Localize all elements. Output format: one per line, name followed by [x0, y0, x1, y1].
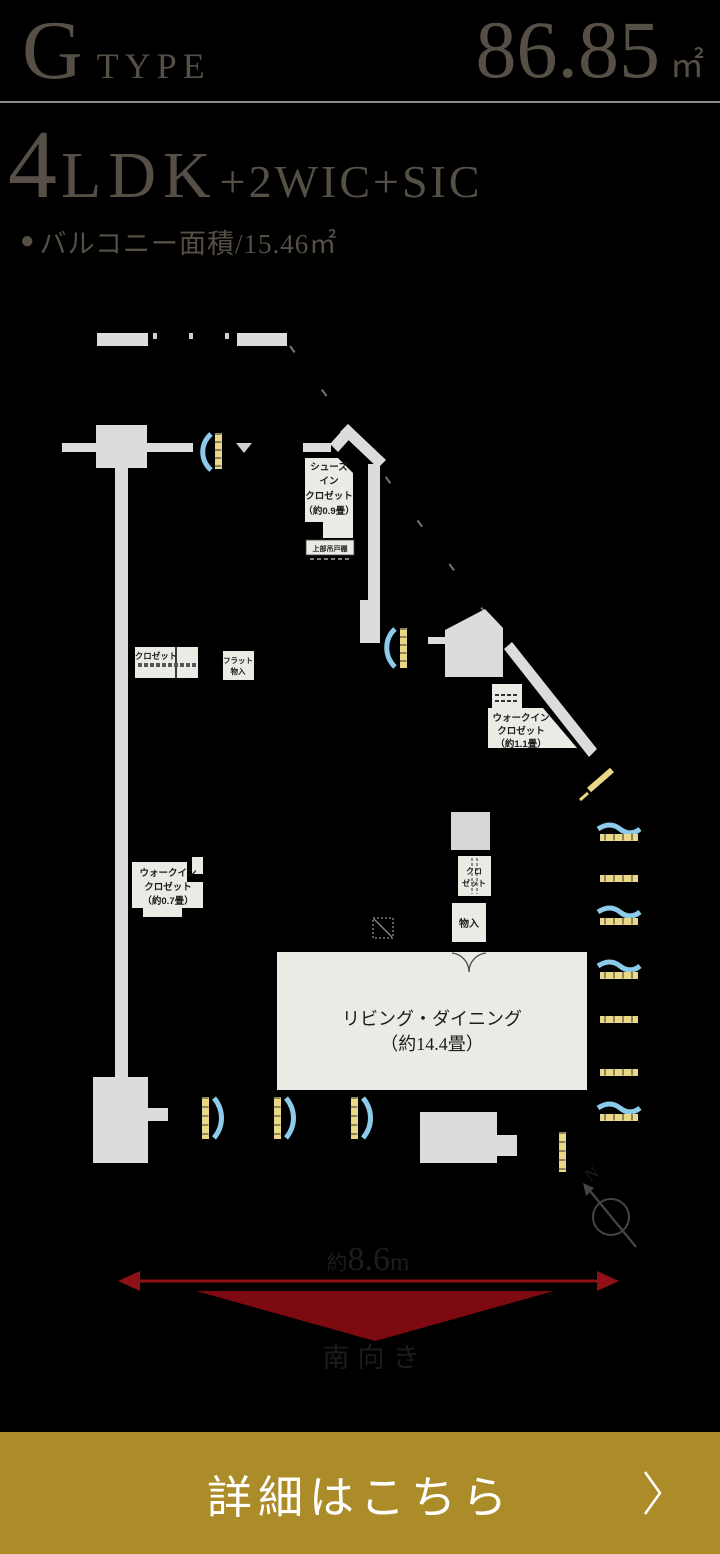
- details-button-label: 詳細はこちら: [207, 1461, 513, 1526]
- wall-tick: [189, 333, 193, 339]
- width-dimension-label: 約8.6m: [327, 1241, 411, 1278]
- door-arc-icon: [363, 1098, 371, 1138]
- dimension-arrowhead-right: [597, 1271, 619, 1291]
- flat-storage-label: フラット: [223, 656, 253, 665]
- door-leaf-icon: [274, 1097, 281, 1139]
- wic07-label: クロゼット: [144, 881, 192, 893]
- shoes-closet-label: （約0.9畳）: [303, 505, 354, 517]
- wic11-label: ウォークイン: [492, 713, 549, 724]
- wic07-label: （約0.7畳）: [142, 895, 193, 907]
- chevron-right-icon: [642, 1467, 664, 1519]
- floorplan-drawing: シューズ イン クロゼット （約0.9畳） 上部吊戸棚 クロゼット フラット 物…: [0, 0, 720, 1554]
- wall-bottom-left-block: [93, 1077, 168, 1163]
- closet2-label: ゼット: [462, 878, 486, 888]
- compass-icon: [583, 1183, 636, 1247]
- floorplan-card: G TYPE 86.85 ㎡ 4 LDK +2WIC+SIC ● バルコニー面積…: [0, 0, 720, 1554]
- dimension-arrowhead-left: [118, 1271, 140, 1291]
- details-button[interactable]: 詳細はこちら: [0, 1432, 720, 1554]
- window-arc-icon: [598, 908, 640, 916]
- entry-arm: [428, 637, 445, 644]
- wall-tick: [153, 333, 157, 339]
- storage-label: 物入: [459, 917, 479, 930]
- corner-window-icon: [580, 793, 588, 800]
- wall-hall-stub: [360, 600, 373, 643]
- wic11-label: （約1.1畳）: [495, 738, 546, 750]
- window-arc-icon: [598, 825, 640, 833]
- dimension-unit: m: [390, 1249, 410, 1276]
- door-arc-icon: [203, 434, 211, 470]
- wall-right-arm: [147, 443, 193, 452]
- hatch-door-diag: [374, 919, 392, 937]
- wall-top-left: [97, 333, 148, 346]
- living-dining-label: （約14.4畳）: [380, 1034, 484, 1054]
- wall-tick: [225, 333, 229, 339]
- closet1-label: クロゼット: [135, 651, 178, 661]
- window-arc-icon: [598, 1104, 640, 1112]
- shoes-closet-label: クロゼット: [305, 490, 353, 502]
- corner-window-icon: [589, 770, 612, 790]
- door-leaf-icon: [202, 1097, 209, 1139]
- door-leaf-icon: [351, 1097, 358, 1139]
- entry-corner-block: [445, 609, 503, 677]
- center-block: [451, 812, 490, 850]
- shoes-closet-label: シューズ: [310, 461, 348, 473]
- dimension-prefix: 約: [327, 1251, 348, 1275]
- dimension-group: 約8.6m 南向き: [118, 1241, 619, 1373]
- wall-top-right: [237, 333, 287, 346]
- compass-n-label: N: [581, 1163, 602, 1186]
- window-arc-icon: [598, 962, 640, 970]
- closet2-label: クロ: [466, 866, 482, 876]
- wall-left-arm: [62, 443, 96, 452]
- living-dining-label: リビング・ダイニング: [342, 1009, 522, 1029]
- wall-bottom-right-block: [420, 1112, 517, 1163]
- entry-wall-bar: [303, 443, 331, 452]
- room-group: シューズ イン クロゼット （約0.9畳） 上部吊戸棚 クロゼット フラット 物…: [132, 458, 587, 1090]
- wic11-label: クロゼット: [497, 725, 545, 737]
- wall-left-corridor: [115, 468, 128, 1082]
- wic07-label: ウォークイン: [139, 868, 196, 879]
- wall-wedge: [236, 443, 252, 453]
- south-facing-triangle: [196, 1291, 554, 1341]
- shoes-closet-label: イン: [319, 476, 338, 487]
- closet2-box: [458, 856, 491, 896]
- wall-left-block: [96, 425, 147, 468]
- south-facing-label: 南向き: [323, 1343, 428, 1373]
- flat-storage-label: 物入: [231, 666, 246, 676]
- door-arc-icon: [286, 1098, 294, 1138]
- door-arc-icon: [387, 629, 395, 667]
- dimension-value: 8.6: [348, 1241, 391, 1278]
- upper-cabinet-label: 上部吊戸棚: [313, 544, 348, 553]
- door-arc-icon: [214, 1098, 222, 1138]
